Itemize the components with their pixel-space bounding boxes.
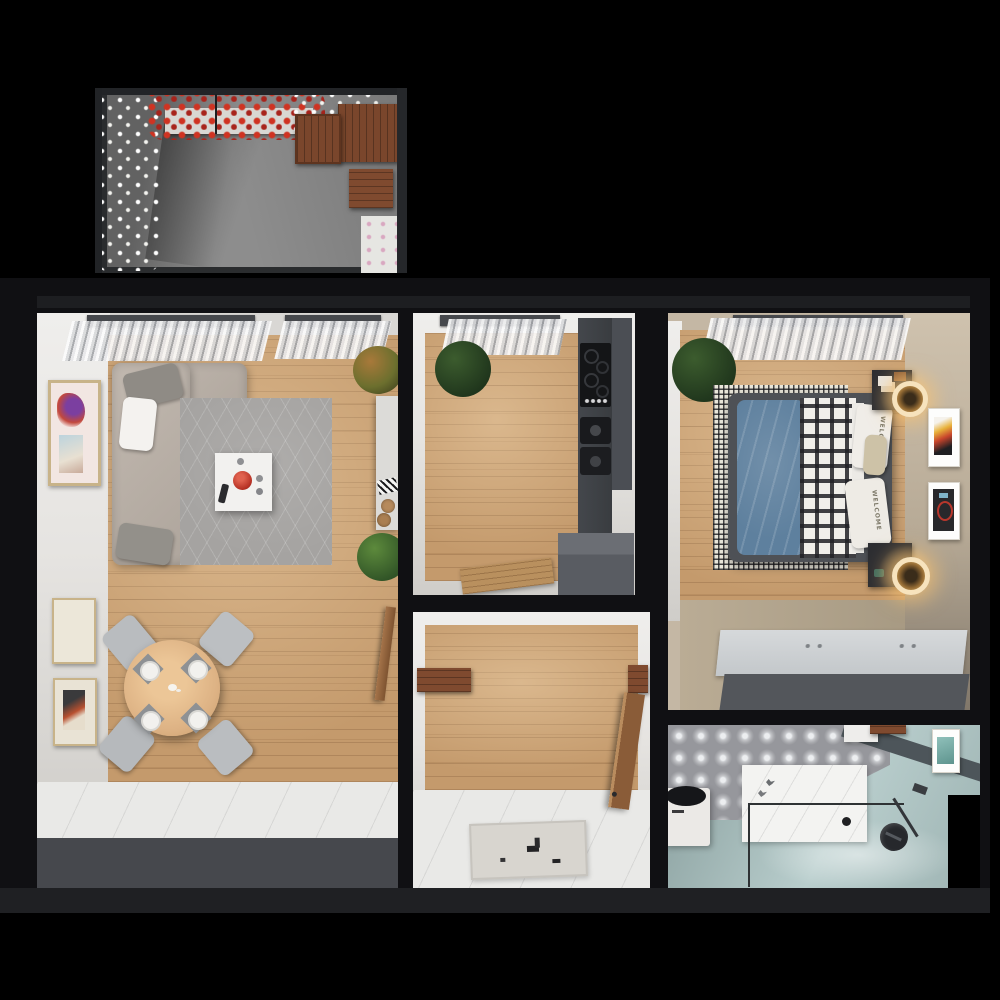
sofa-pillow-white bbox=[118, 396, 157, 451]
flower-decal-2 bbox=[758, 790, 767, 797]
bedroom: WELCOME WELCOME bbox=[668, 313, 970, 710]
mirror-glass bbox=[937, 737, 954, 764]
pergola-beam-left bbox=[95, 88, 102, 273]
poster-bottom bbox=[928, 482, 960, 540]
living-white-floor bbox=[37, 782, 398, 840]
mat-item-4 bbox=[552, 859, 560, 863]
living-room bbox=[37, 313, 398, 888]
washing-machine bbox=[668, 788, 710, 846]
vanity-wood-strip bbox=[870, 725, 906, 734]
pillow-print-text-2: WELCOME bbox=[870, 490, 882, 532]
burner-1 bbox=[584, 349, 599, 364]
wall-art-large-print2 bbox=[59, 435, 83, 473]
faucet bbox=[590, 425, 601, 436]
red-bowl bbox=[233, 471, 252, 490]
mat-item-2 bbox=[535, 838, 540, 848]
wood-table bbox=[338, 104, 398, 162]
terrace bbox=[95, 88, 407, 273]
wood-chair bbox=[295, 114, 341, 164]
bathroom bbox=[668, 725, 980, 888]
plate-1 bbox=[140, 661, 160, 681]
living-curtain-left bbox=[62, 321, 272, 361]
shower-head-slash bbox=[885, 832, 902, 842]
hallway-wood-floor bbox=[425, 625, 638, 790]
pergola-beam-right bbox=[397, 88, 407, 273]
washer-panel bbox=[672, 810, 684, 813]
cork-stool-1 bbox=[381, 499, 395, 513]
plant-top-right bbox=[353, 346, 398, 394]
bathroom-mirror bbox=[932, 729, 960, 773]
wall-art-large bbox=[48, 380, 101, 486]
burner-4 bbox=[596, 385, 609, 398]
living-gray-band bbox=[37, 838, 398, 888]
kitchen bbox=[413, 313, 635, 595]
poster-red-ring bbox=[937, 501, 953, 521]
candle bbox=[168, 684, 177, 691]
apartment-top-trim bbox=[37, 296, 970, 308]
apartment-bottom-trim bbox=[0, 888, 990, 913]
wall-art-large-print bbox=[57, 393, 85, 427]
floorplan-render: WELCOME WELCOME bbox=[0, 0, 1000, 1000]
wall-art-small-2-print bbox=[63, 690, 85, 730]
cup-3 bbox=[256, 488, 263, 495]
poster-teal-mark bbox=[939, 493, 948, 498]
faucet-2 bbox=[590, 456, 601, 467]
cork-stool-2 bbox=[377, 513, 391, 527]
bedroom-curtain bbox=[701, 318, 911, 360]
pergola-beam-top bbox=[95, 88, 407, 95]
glass-screen-v bbox=[748, 803, 750, 887]
door-handle bbox=[612, 791, 618, 797]
ring-lamp-bottom bbox=[892, 557, 930, 595]
platform-handles-1 bbox=[805, 644, 825, 648]
blue-duvet bbox=[737, 400, 805, 555]
poster-bottom-art bbox=[933, 489, 954, 531]
pergola-beam-mid bbox=[215, 94, 217, 134]
hallway-shelf-right bbox=[628, 665, 648, 693]
remote-control bbox=[218, 483, 229, 503]
cup-1 bbox=[237, 458, 244, 465]
plate-4 bbox=[188, 710, 208, 730]
burner-2 bbox=[596, 361, 609, 374]
welcome-pillow-bottom: WELCOME bbox=[844, 477, 892, 549]
cooktop bbox=[580, 343, 611, 407]
plate-2 bbox=[188, 660, 208, 680]
burner-3 bbox=[584, 373, 599, 388]
shower-head bbox=[880, 823, 908, 851]
accent-pillow bbox=[863, 434, 888, 475]
hallway-shelf-left bbox=[417, 668, 471, 692]
kitchen-plant bbox=[435, 341, 491, 397]
kitchen-sink bbox=[580, 417, 611, 444]
glass-screen-h bbox=[748, 803, 904, 805]
hallway bbox=[413, 612, 650, 888]
shower-drain bbox=[842, 817, 851, 826]
wall-art-small-2 bbox=[53, 678, 97, 746]
ring-lamp-top bbox=[892, 381, 928, 417]
bathroom-corner-notch bbox=[948, 795, 980, 888]
kitchen-island-cabinet bbox=[558, 533, 634, 595]
storage-platform-top bbox=[716, 630, 968, 676]
kitchen-tall-cabinet bbox=[612, 318, 632, 490]
mat-item-3 bbox=[500, 858, 505, 862]
door-mat bbox=[469, 820, 588, 880]
poster-top-art bbox=[934, 417, 952, 455]
kitchen-sink-2 bbox=[580, 447, 611, 475]
poster-top bbox=[928, 408, 960, 467]
storage-platform-front bbox=[719, 674, 969, 710]
platform-handles-2 bbox=[899, 644, 919, 648]
coffee-table bbox=[215, 453, 272, 511]
washer-lid-open bbox=[668, 786, 706, 806]
wood-bench bbox=[349, 169, 393, 208]
cup-2 bbox=[256, 475, 263, 482]
flower-decal-1 bbox=[766, 779, 775, 786]
wall-art-small-1 bbox=[52, 598, 96, 664]
cooktop-knobs bbox=[584, 399, 608, 403]
plaid-blanket bbox=[800, 398, 856, 558]
plate-3 bbox=[141, 711, 161, 731]
